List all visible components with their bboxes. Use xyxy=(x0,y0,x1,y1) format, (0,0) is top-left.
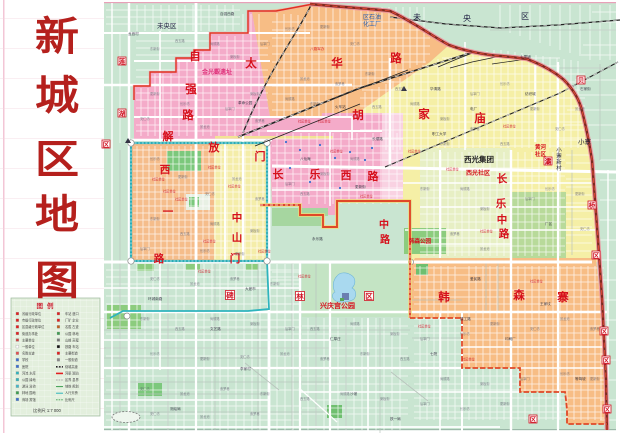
svg-text:长乐坊: 长乐坊 xyxy=(560,371,570,376)
svg-text:更新街: 更新街 xyxy=(320,24,330,29)
svg-text:尚德路: 尚德路 xyxy=(350,156,360,161)
svg-text:建工路: 建工路 xyxy=(460,316,471,321)
svg-text:安仁坊: 安仁坊 xyxy=(205,191,215,196)
svg-text:等驾坡: 等驾坡 xyxy=(575,376,586,381)
svg-text:社区单位: 社区单位 xyxy=(446,167,460,172)
svg-text:绕城高速: 绕城高速 xyxy=(65,364,79,369)
svg-text:更新街: 更新街 xyxy=(178,174,188,179)
svg-text:更新街: 更新街 xyxy=(150,91,160,96)
svg-text:尚德路: 尚德路 xyxy=(410,101,420,106)
svg-text:长乐坊: 长乐坊 xyxy=(460,331,470,336)
svg-text:社区单位: 社区单位 xyxy=(480,229,494,234)
svg-text:安仁坊: 安仁坊 xyxy=(240,354,250,359)
svg-text:案板街: 案板街 xyxy=(320,171,330,176)
svg-text:东新街: 东新街 xyxy=(440,141,450,146)
svg-text:小寨新村: 小寨新村 xyxy=(555,146,562,171)
svg-text:后宰门: 后宰门 xyxy=(285,326,295,331)
svg-text:景龙池: 景龙池 xyxy=(180,391,190,396)
svg-text:更新街: 更新街 xyxy=(590,376,600,381)
svg-text:区: 区 xyxy=(103,141,110,149)
svg-text:龙首村: 龙首村 xyxy=(128,31,139,36)
svg-text:长乐坊: 长乐坊 xyxy=(150,351,160,356)
svg-text:索罗巷: 索罗巷 xyxy=(250,411,260,416)
svg-text:社区单位: 社区单位 xyxy=(208,165,222,170)
svg-text:未央区: 未央区 xyxy=(157,21,177,30)
svg-text:区: 区 xyxy=(601,328,608,336)
svg-text:铁路 车站: 铁路 车站 xyxy=(65,344,79,349)
svg-text:社区单位: 社区单位 xyxy=(198,269,212,274)
svg-text:测绘局: 测绘局 xyxy=(170,406,181,411)
svg-text:太: 太 xyxy=(244,56,257,70)
svg-text:自强西路: 自强西路 xyxy=(220,11,235,16)
svg-text:中: 中 xyxy=(497,213,508,226)
svg-text:桥: 桥 xyxy=(589,201,596,210)
svg-text:胡: 胡 xyxy=(352,108,364,122)
svg-text:尚德路: 尚德路 xyxy=(210,41,220,46)
svg-text:公园 林地: 公园 林地 xyxy=(65,331,79,336)
svg-text:更新街: 更新街 xyxy=(200,356,210,361)
svg-text:化工厂: 化工厂 xyxy=(363,20,381,28)
svg-text:景龙池: 景龙池 xyxy=(300,76,310,81)
svg-text:西光社区: 西光社区 xyxy=(466,169,490,177)
svg-text:路: 路 xyxy=(390,51,402,65)
svg-text:林地 园地: 林地 园地 xyxy=(22,390,36,395)
svg-text:路: 路 xyxy=(380,233,391,246)
svg-text:莲: 莲 xyxy=(119,57,126,66)
svg-text:火车站: 火车站 xyxy=(335,104,346,109)
svg-text:索罗巷: 索罗巷 xyxy=(255,196,265,201)
svg-text:医院: 医院 xyxy=(22,364,29,369)
svg-text:景龙池: 景龙池 xyxy=(480,246,490,251)
svg-text:后宰门: 后宰门 xyxy=(225,106,235,111)
svg-text:碑: 碑 xyxy=(226,290,234,300)
svg-text:区: 区 xyxy=(365,292,373,301)
svg-text:韩: 韩 xyxy=(438,290,450,304)
svg-text:长乐坊: 长乐坊 xyxy=(460,406,470,411)
svg-text:兴庆宫公园: 兴庆宫公园 xyxy=(320,301,355,310)
svg-text:索罗巷: 索罗巷 xyxy=(230,276,240,281)
svg-text:强: 强 xyxy=(185,83,197,96)
svg-text:长乐坊: 长乐坊 xyxy=(180,101,190,106)
svg-text:索罗巷: 索罗巷 xyxy=(335,81,345,86)
svg-text:大差市: 大差市 xyxy=(245,286,256,291)
svg-text:西五路: 西五路 xyxy=(310,326,320,331)
svg-text:门: 门 xyxy=(255,149,266,163)
svg-text:东新街: 东新街 xyxy=(150,216,160,221)
svg-text:社区单位: 社区单位 xyxy=(330,149,344,154)
svg-text:游泳 浴池: 游泳 浴池 xyxy=(22,384,36,389)
svg-text:西五路: 西五路 xyxy=(395,86,405,91)
svg-text:市级行政单位: 市级行政单位 xyxy=(22,318,42,323)
svg-text:路: 路 xyxy=(368,169,380,183)
svg-text:案板街: 案板街 xyxy=(250,321,260,326)
svg-text:公园 绿地: 公园 绿地 xyxy=(22,377,36,382)
svg-text:寨: 寨 xyxy=(556,290,569,304)
svg-text:厂区: 厂区 xyxy=(545,222,553,226)
svg-text:社区单位: 社区单位 xyxy=(418,324,432,329)
svg-text:东新街: 东新街 xyxy=(420,186,430,191)
svg-text:文艺路: 文艺路 xyxy=(210,326,221,331)
svg-text:案板街: 案板街 xyxy=(480,206,490,211)
svg-text:家: 家 xyxy=(418,107,430,121)
svg-text:西五路: 西五路 xyxy=(300,191,310,196)
svg-text:案板街: 案板街 xyxy=(250,228,260,233)
svg-text:乐: 乐 xyxy=(496,197,507,210)
svg-text:长: 长 xyxy=(273,167,285,181)
svg-text:案板街: 案板街 xyxy=(250,91,260,96)
svg-text:厂矿 企业: 厂矿 企业 xyxy=(65,318,79,323)
svg-text:路: 路 xyxy=(182,108,194,122)
svg-text:区界 县界: 区界 县界 xyxy=(65,377,79,382)
svg-text:路: 路 xyxy=(499,227,510,240)
svg-text:西五路: 西五路 xyxy=(175,38,185,43)
svg-text:名胜 古迹: 名胜 古迹 xyxy=(65,324,79,329)
svg-text:韩森公园: 韩森公园 xyxy=(409,237,432,245)
svg-text:案板街: 案板街 xyxy=(440,116,450,121)
svg-text:后宰门: 后宰门 xyxy=(420,401,430,406)
svg-text:社区单位: 社区单位 xyxy=(318,119,332,124)
svg-text:河流 水库: 河流 水库 xyxy=(22,370,36,375)
svg-text:社区单位: 社区单位 xyxy=(298,274,312,279)
svg-text:社区单位: 社区单位 xyxy=(503,124,517,129)
svg-text:安仁坊: 安仁坊 xyxy=(150,411,160,416)
svg-text:西五路: 西五路 xyxy=(400,356,410,361)
svg-text:尚德路: 尚德路 xyxy=(460,186,470,191)
svg-text:十里铺: 十里铺 xyxy=(520,54,531,59)
svg-text:西: 西 xyxy=(160,164,171,176)
svg-text:后宰门: 后宰门 xyxy=(525,196,535,201)
svg-text:社区单位: 社区单位 xyxy=(462,357,476,362)
svg-text:中: 中 xyxy=(379,218,389,231)
svg-text:中: 中 xyxy=(232,211,243,224)
svg-text:石家街: 石家街 xyxy=(580,86,591,91)
svg-text:河渠 湖泊: 河渠 湖泊 xyxy=(65,370,79,375)
svg-text:社区单位: 社区单位 xyxy=(203,239,217,244)
svg-text:地铁 规划: 地铁 规划 xyxy=(65,384,79,389)
svg-text:景龙池: 景龙池 xyxy=(232,176,242,181)
svg-text:八路军办: 八路军办 xyxy=(310,46,325,51)
svg-text:区县级行政单位: 区县级行政单位 xyxy=(22,324,45,329)
svg-text:安仁坊: 安仁坊 xyxy=(555,126,565,131)
svg-text:社区单位: 社区单位 xyxy=(408,149,422,154)
svg-text:景龙池: 景龙池 xyxy=(280,351,290,356)
svg-text:尚德路: 尚德路 xyxy=(340,391,350,396)
svg-text:更新街: 更新街 xyxy=(530,106,540,111)
svg-text:比例尺 1:7 000: 比例尺 1:7 000 xyxy=(33,407,61,414)
svg-text:更新街: 更新街 xyxy=(235,251,245,256)
svg-text:电厂: 电厂 xyxy=(470,106,478,111)
svg-text:安仁坊: 安仁坊 xyxy=(150,276,160,281)
svg-text:铁一局: 铁一局 xyxy=(390,416,401,421)
svg-text:东新街: 东新街 xyxy=(140,316,150,321)
svg-text:尚德路: 尚德路 xyxy=(210,221,220,226)
svg-text:东新街: 东新街 xyxy=(260,391,270,396)
svg-text:后宰门: 后宰门 xyxy=(470,91,480,96)
svg-text:更新街: 更新街 xyxy=(355,184,366,189)
svg-text:央: 央 xyxy=(463,13,471,23)
svg-text:金光觀遗址: 金光觀遗址 xyxy=(201,68,232,76)
svg-text:长乐坊: 长乐坊 xyxy=(545,186,555,191)
svg-text:长乐坊: 长乐坊 xyxy=(150,156,160,161)
svg-text:尚德路: 尚德路 xyxy=(350,321,360,326)
svg-text:主要单位: 主要单位 xyxy=(22,337,36,342)
svg-text:灞: 灞 xyxy=(545,157,552,166)
svg-text:贝: 贝 xyxy=(578,77,585,85)
svg-text:林: 林 xyxy=(296,291,304,301)
svg-text:社区单位: 社区单位 xyxy=(258,249,272,254)
svg-text:社区单位: 社区单位 xyxy=(298,119,312,124)
svg-text:华清路: 华清路 xyxy=(430,86,441,91)
svg-text:长缨路: 长缨路 xyxy=(372,136,383,141)
svg-text:一般街道: 一般街道 xyxy=(65,357,79,362)
svg-text:森: 森 xyxy=(513,288,525,302)
svg-text:西光集团: 西光集团 xyxy=(464,154,494,164)
svg-text:区: 区 xyxy=(603,357,610,365)
svg-text:区: 区 xyxy=(593,252,600,260)
svg-text:景龙池: 景龙池 xyxy=(200,414,210,419)
svg-text:长乐坊: 长乐坊 xyxy=(200,248,210,253)
svg-text:区: 区 xyxy=(530,416,537,424)
svg-text:更新街: 更新街 xyxy=(500,401,510,406)
svg-text:安仁坊: 安仁坊 xyxy=(350,41,360,46)
svg-text:环城南路: 环城南路 xyxy=(148,296,163,301)
svg-text:东新街: 东新街 xyxy=(150,46,160,51)
svg-text:沙坡: 沙坡 xyxy=(350,391,358,396)
svg-text:未: 未 xyxy=(413,12,421,22)
svg-text:安仁坊: 安仁坊 xyxy=(530,326,540,331)
svg-text:长: 长 xyxy=(497,172,508,185)
svg-text:安仁坊: 安仁坊 xyxy=(140,386,150,391)
svg-text:案板街: 案板街 xyxy=(230,54,240,59)
svg-text:西: 西 xyxy=(341,169,352,182)
svg-text:更新街: 更新街 xyxy=(575,191,585,196)
svg-text:路: 路 xyxy=(154,252,165,265)
svg-text:主要街道: 主要街道 xyxy=(65,351,79,356)
svg-text:比例尺: 比例尺 xyxy=(65,397,75,402)
svg-text:山: 山 xyxy=(232,231,243,244)
svg-text:印刷厂: 印刷厂 xyxy=(505,336,516,341)
svg-text:区石油: 区石油 xyxy=(363,13,381,21)
svg-text:区: 区 xyxy=(521,12,529,21)
svg-text:社区单位: 社区单位 xyxy=(163,189,177,194)
svg-text:长乐坊: 长乐坊 xyxy=(500,81,510,86)
svg-text:案板街: 案板街 xyxy=(380,396,390,401)
svg-text:八仙庵: 八仙庵 xyxy=(300,156,311,161)
svg-text:山峰 高程: 山峰 高程 xyxy=(65,337,79,342)
svg-text:商场 宾馆: 商场 宾馆 xyxy=(22,397,36,402)
svg-text:索罗巷: 索罗巷 xyxy=(255,118,265,123)
svg-text:索罗巷: 索罗巷 xyxy=(450,231,460,236)
svg-text:索罗巷: 索罗巷 xyxy=(320,356,330,361)
svg-text:爱民路: 爱民路 xyxy=(470,276,481,281)
svg-text:黄河: 黄河 xyxy=(535,143,547,151)
svg-text:永乐路: 永乐路 xyxy=(312,236,323,241)
svg-text:更新街: 更新街 xyxy=(490,321,500,326)
svg-text:尚德路: 尚德路 xyxy=(210,316,220,321)
svg-text:西五路: 西五路 xyxy=(372,104,382,109)
svg-text:长乐坊: 长乐坊 xyxy=(285,26,295,31)
svg-text:西五路: 西五路 xyxy=(175,326,185,331)
svg-text:李家村: 李家村 xyxy=(240,366,251,371)
svg-text:西五路: 西五路 xyxy=(300,396,310,401)
svg-text:后宰门: 后宰门 xyxy=(420,336,430,341)
svg-text:放: 放 xyxy=(208,140,221,154)
svg-text:东新街: 东新街 xyxy=(310,101,320,106)
svg-text:七院: 七院 xyxy=(430,351,438,356)
svg-text:车站 渡口: 车站 渡口 xyxy=(65,311,79,316)
svg-text:东新街: 东新街 xyxy=(360,351,370,356)
svg-text:王家坟: 王家坟 xyxy=(540,301,551,306)
svg-text:省级行政单位: 省级行政单位 xyxy=(22,311,42,316)
svg-text:乐: 乐 xyxy=(310,167,321,181)
svg-text:解: 解 xyxy=(163,129,174,143)
svg-text:区: 区 xyxy=(604,406,611,414)
svg-text:景龙池: 景龙池 xyxy=(560,316,570,321)
svg-text:职工大学: 职工大学 xyxy=(432,131,447,136)
svg-text:社区单位: 社区单位 xyxy=(175,197,189,202)
svg-text:社区单位: 社区单位 xyxy=(530,279,544,284)
svg-text:华: 华 xyxy=(331,56,343,70)
svg-text:街道办事处: 街道办事处 xyxy=(22,331,39,336)
svg-text:革命公园: 革命公园 xyxy=(238,100,253,105)
svg-text:索罗巷: 索罗巷 xyxy=(220,386,230,391)
svg-text:湖: 湖 xyxy=(119,109,126,118)
svg-text:庙: 庙 xyxy=(474,111,486,125)
svg-text:自: 自 xyxy=(189,49,201,63)
svg-text:西五路: 西五路 xyxy=(180,231,190,236)
svg-text:学校: 学校 xyxy=(22,357,29,362)
svg-text:名胜古迹: 名胜古迹 xyxy=(22,351,36,356)
svg-text:后宰门: 后宰门 xyxy=(260,41,270,46)
svg-text:后宰门: 后宰门 xyxy=(140,246,150,251)
svg-text:安仁坊: 安仁坊 xyxy=(140,116,150,121)
svg-text:小寨: 小寨 xyxy=(578,137,592,146)
svg-text:索罗巷: 索罗巷 xyxy=(590,326,600,331)
svg-text:社区单位: 社区单位 xyxy=(228,184,242,189)
svg-text:社区单位: 社区单位 xyxy=(360,194,374,199)
svg-text:纺织城: 纺织城 xyxy=(525,91,536,96)
svg-text:案板街: 案板街 xyxy=(390,331,400,336)
svg-text:尚德路: 尚德路 xyxy=(285,96,295,101)
svg-text:案板街: 案板街 xyxy=(480,381,490,386)
svg-text:东新街: 东新街 xyxy=(365,71,375,76)
svg-text:索罗巷: 索罗巷 xyxy=(470,126,480,131)
svg-text:社区单位: 社区单位 xyxy=(152,177,166,182)
svg-text:人行天桥: 人行天桥 xyxy=(65,390,79,395)
svg-text:西五路: 西五路 xyxy=(500,141,510,146)
svg-text:景龙池: 景龙池 xyxy=(190,281,200,286)
svg-text:后宰门: 后宰门 xyxy=(520,376,530,381)
svg-text:后宰门: 后宰门 xyxy=(285,181,295,186)
svg-text:尚德路: 尚德路 xyxy=(440,376,450,381)
svg-text:仁厚庄: 仁厚庄 xyxy=(330,336,341,341)
svg-text:一: 一 xyxy=(163,206,174,218)
svg-text:一般单位: 一般单位 xyxy=(22,344,36,349)
svg-text:景龙池: 景龙池 xyxy=(575,106,585,111)
svg-text:安仁坊: 安仁坊 xyxy=(580,226,590,231)
svg-text:东新街: 东新街 xyxy=(270,281,280,286)
svg-text:景龙池: 景龙池 xyxy=(200,124,210,129)
